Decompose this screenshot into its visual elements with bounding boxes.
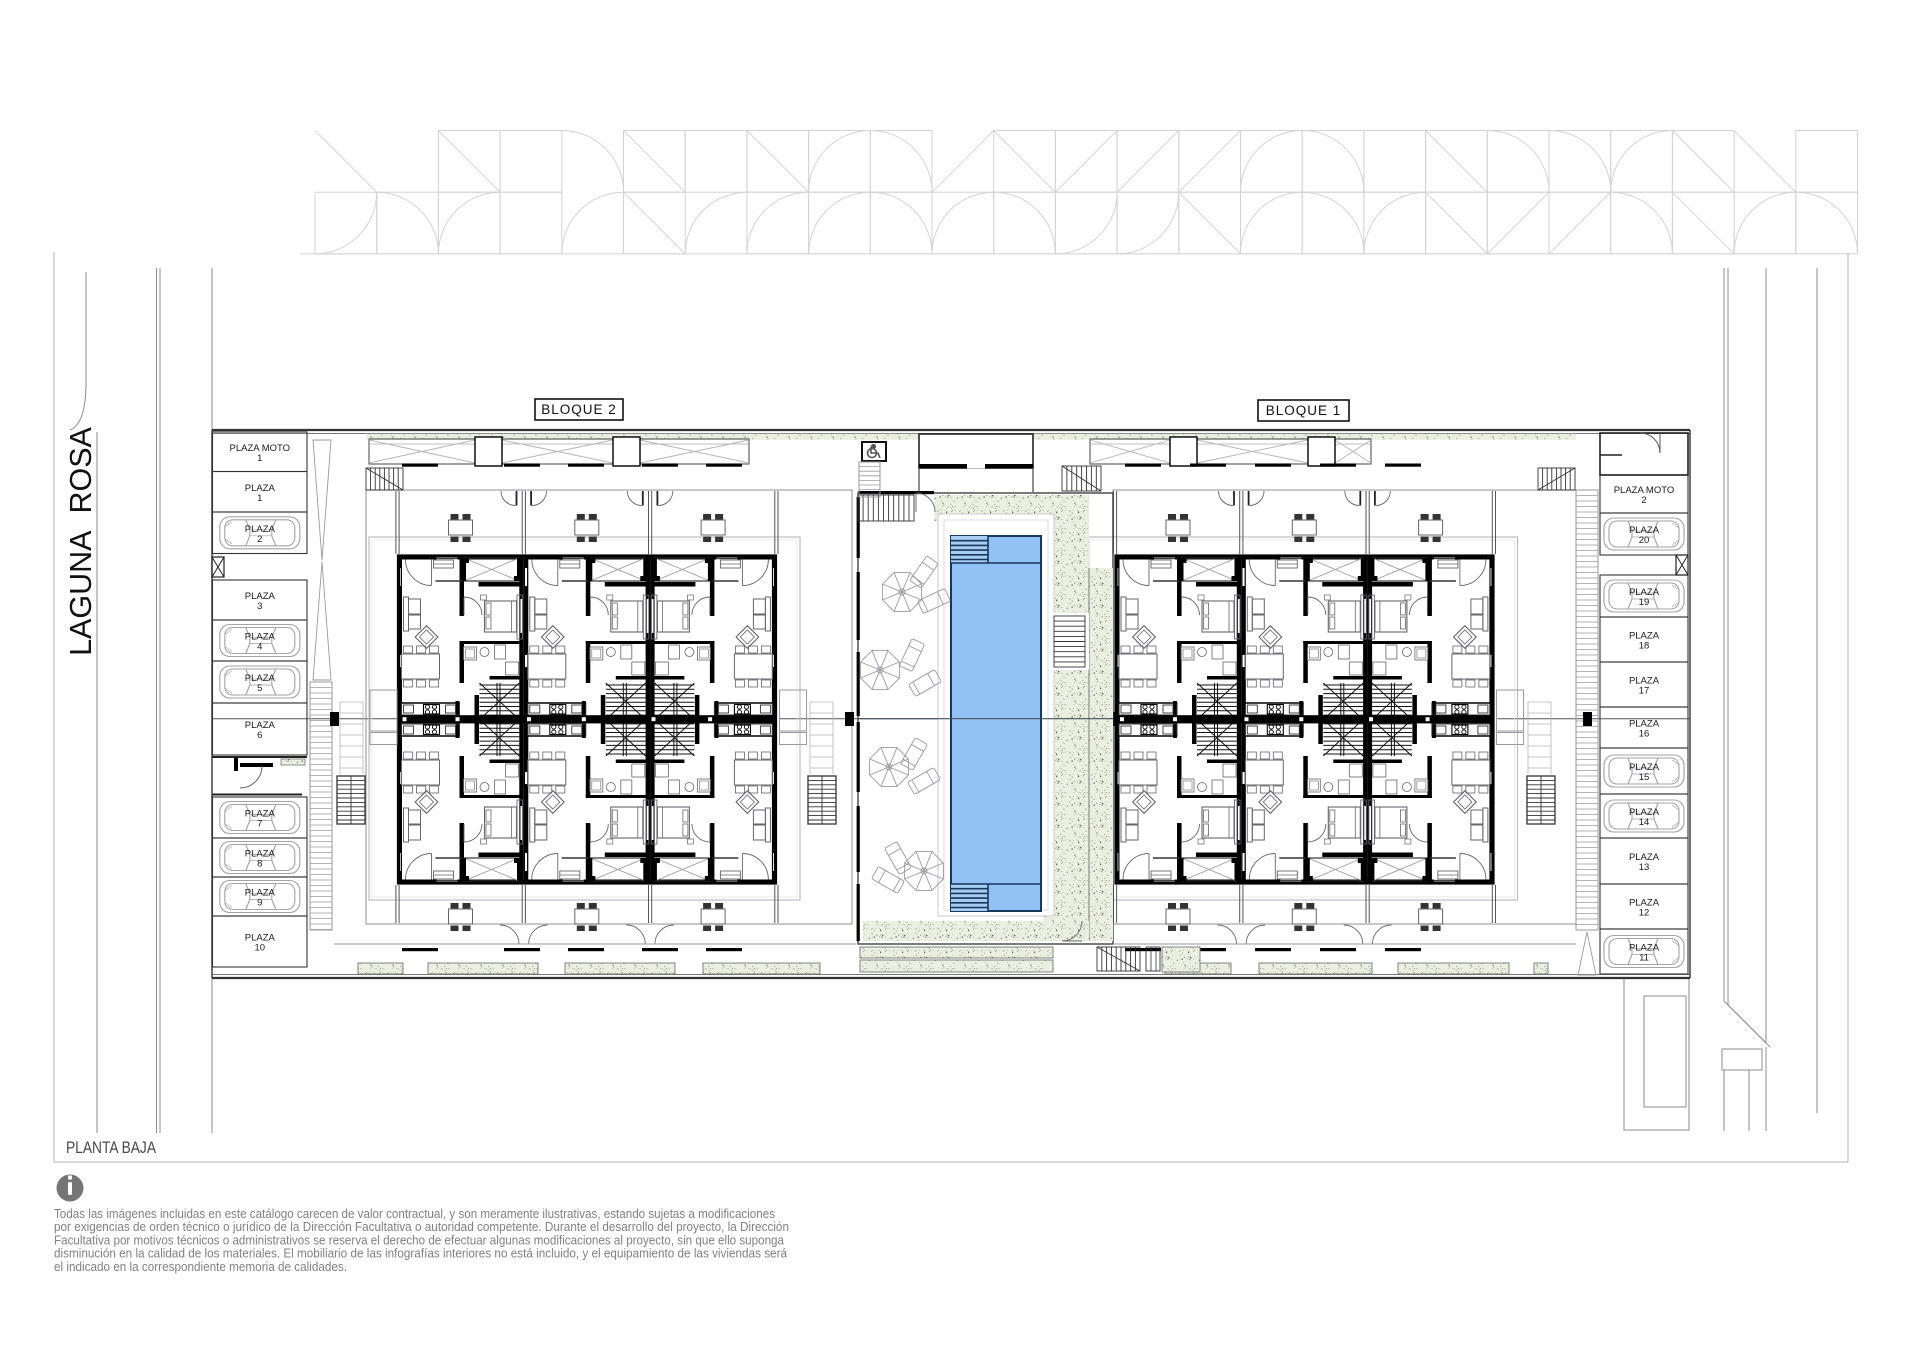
svg-text:3: 3 xyxy=(257,601,262,612)
svg-text:14: 14 xyxy=(1639,817,1650,828)
svg-text:el indicado en la correspondie: el indicado en la correspondiente memori… xyxy=(54,1260,347,1274)
svg-text:18: 18 xyxy=(1639,641,1650,652)
svg-text:Facultativa por motivos técnic: Facultativa por motivos técnicos o admin… xyxy=(54,1233,784,1247)
svg-text:BLOQUE 1: BLOQUE 1 xyxy=(1266,403,1342,418)
svg-text:20: 20 xyxy=(1639,535,1650,546)
svg-text:disminución en la calidad de: disminución en la calidad de los materia… xyxy=(54,1247,787,1261)
svg-text:PLANTA BAJA: PLANTA BAJA xyxy=(66,1139,156,1157)
svg-text:1: 1 xyxy=(257,493,262,504)
svg-text:por exigencias de orden técni: por exigencias de orden técnico o jurídi… xyxy=(54,1220,789,1234)
svg-text:4: 4 xyxy=(257,642,262,653)
svg-text:2: 2 xyxy=(257,534,262,545)
svg-text:16: 16 xyxy=(1639,729,1650,740)
svg-text:19: 19 xyxy=(1639,597,1650,608)
svg-text:BLOQUE 2: BLOQUE 2 xyxy=(541,402,617,417)
svg-text:17: 17 xyxy=(1639,686,1650,697)
svg-text:6: 6 xyxy=(257,730,262,741)
svg-text:7: 7 xyxy=(257,819,262,830)
svg-text:13: 13 xyxy=(1639,862,1650,873)
svg-text:10: 10 xyxy=(255,943,266,954)
svg-text:8: 8 xyxy=(257,859,262,870)
svg-text:LAGUNA ROSA: LAGUNA ROSA xyxy=(64,426,98,655)
svg-text:Todas las imágenes incluidas e: Todas las imágenes incluidas en este cat… xyxy=(54,1207,775,1221)
svg-text:11: 11 xyxy=(1639,953,1649,964)
svg-text:2: 2 xyxy=(1641,495,1646,506)
svg-text:12: 12 xyxy=(1639,908,1650,919)
svg-text:1: 1 xyxy=(257,453,262,464)
svg-text:5: 5 xyxy=(257,683,262,694)
svg-text:9: 9 xyxy=(257,898,262,909)
svg-text:15: 15 xyxy=(1639,772,1650,783)
